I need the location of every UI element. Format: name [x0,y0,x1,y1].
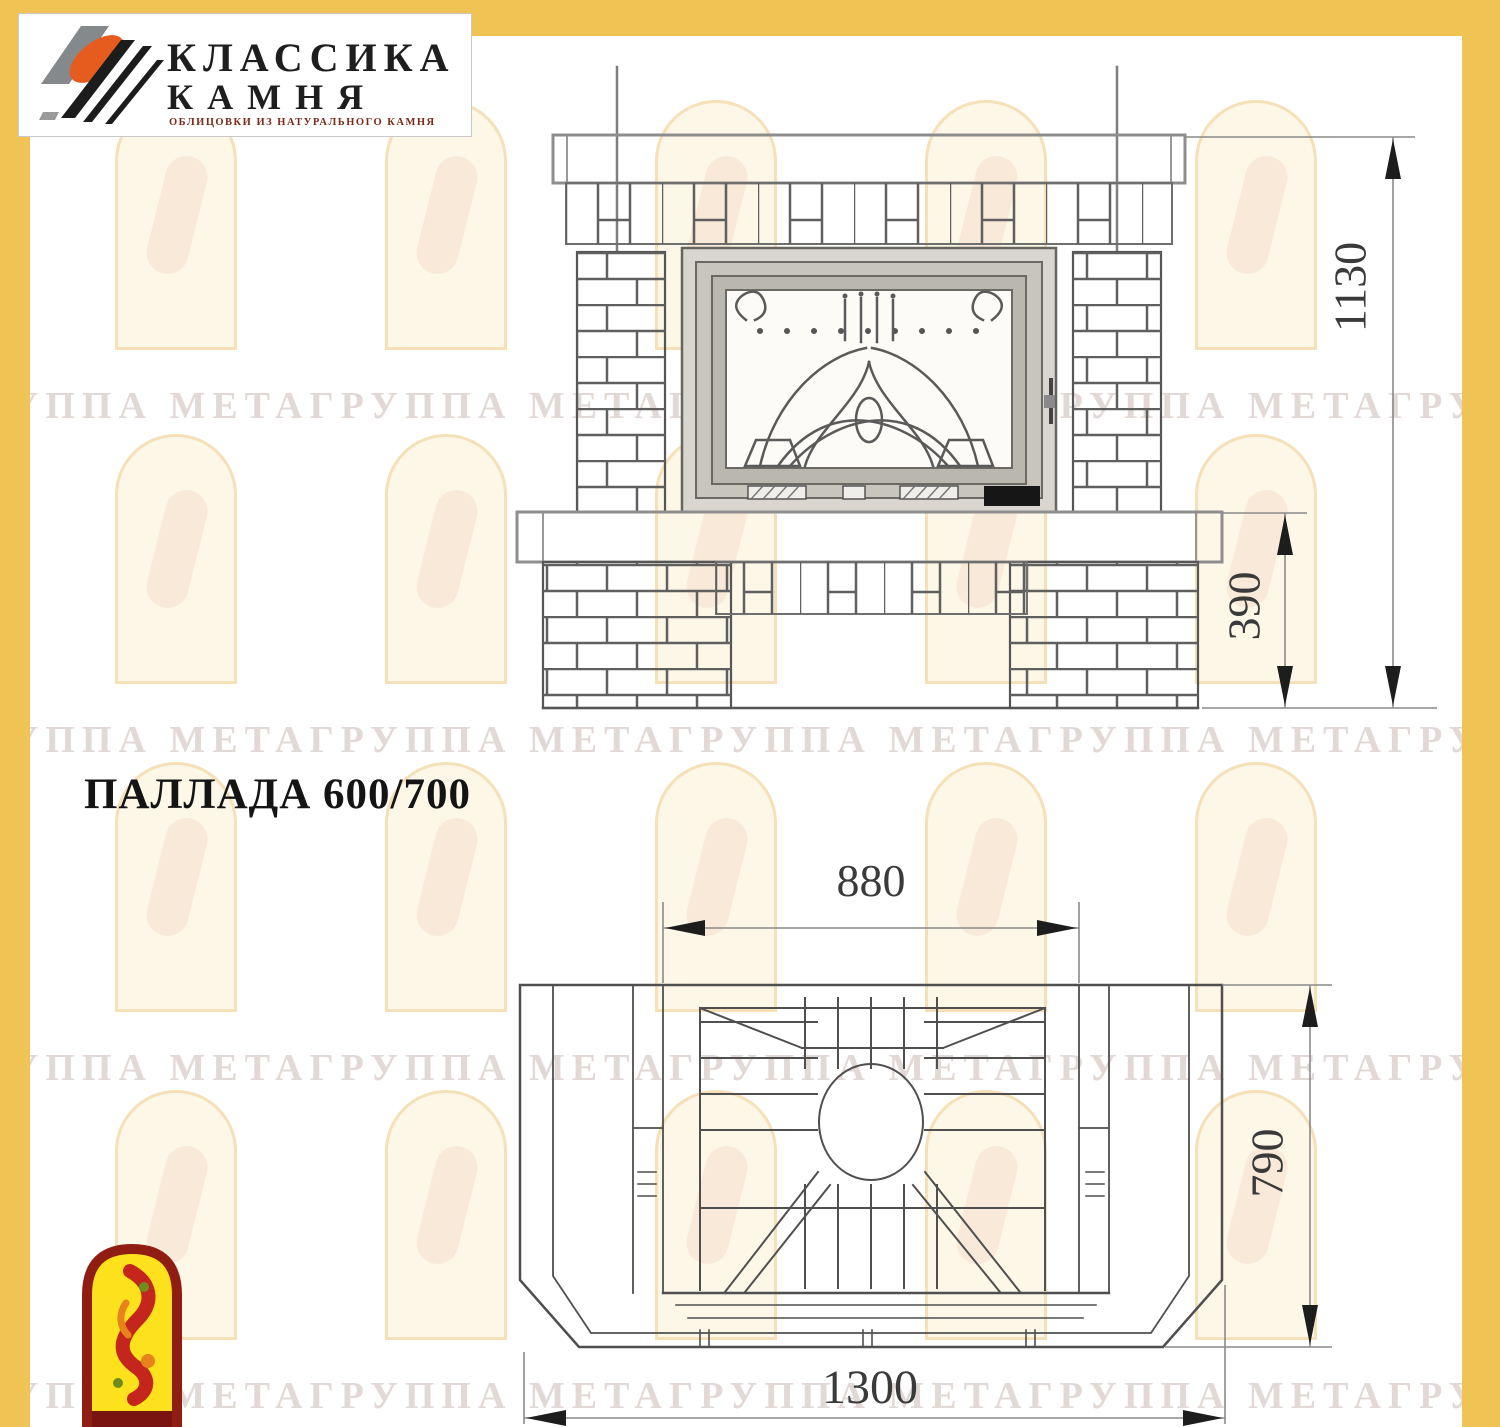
arrowhead-down-icon [1302,1305,1318,1345]
dim-total-height-label: 1130 [1325,242,1376,332]
logo-subtitle: ОБЛИЦОВКИ ИЗ НАТУРАЛЬНОГО КАМНЯ [169,117,436,128]
page-border-right [1462,36,1500,1427]
front-elevation [517,67,1222,708]
logo-line1: КЛАССИКА [167,34,455,81]
mantel-shelf [553,135,1185,183]
flame-arch-logo-icon [82,1243,182,1427]
page: { "page": { "width": 1500, "height": 142… [0,0,1500,1427]
plan-dimensions: 880 790 1300 [524,855,1332,1426]
flue-circle [819,1064,923,1180]
stone-logo-icon [19,14,169,134]
arrowhead-left-icon [665,920,705,936]
page-border-left [0,0,30,1427]
arrowhead-right-icon [1037,920,1077,936]
mantel-shelf-end-joints [567,135,1171,183]
elevation-dimensions: 1130 390 [1185,137,1437,708]
hearth-shelf [517,512,1222,562]
technical-drawing: 1130 390 [0,0,1500,1427]
model-title: ПАЛЛАДА 600/700 [84,770,471,819]
arrowhead-up-icon [1277,515,1293,555]
firebox-insert [682,248,1056,512]
grate-bars-right [925,1022,1043,1130]
arrowhead-down-icon [1385,666,1401,706]
splayed-walls [725,1172,1020,1292]
dim-depth-label: 790 [1242,1129,1293,1198]
plan-view [520,985,1222,1347]
dim-top-width-label: 880 [837,855,906,906]
arrowhead-right-icon [1183,1410,1223,1426]
upper-frieze-bricks [566,183,1172,244]
arrowhead-left-icon [526,1410,566,1426]
arrowhead-down-icon [1277,666,1293,706]
vent-slot [843,486,865,499]
arrowhead-up-icon [1385,139,1401,179]
logo-line2: КАМНЯ [167,76,377,118]
arrowhead-up-icon [1302,987,1318,1027]
grate-bars-left [702,1022,817,1130]
dim-plinth-height-label: 390 [1219,572,1270,641]
company-logo: КЛАССИКА КАМНЯ ОБЛИЦОВКИ ИЗ НАТУРАЛЬНОГО… [18,13,472,137]
ash-drawer-handle [984,486,1040,506]
dim-total-width-label: 1300 [822,1361,918,1414]
insert-plan [663,998,1109,1346]
